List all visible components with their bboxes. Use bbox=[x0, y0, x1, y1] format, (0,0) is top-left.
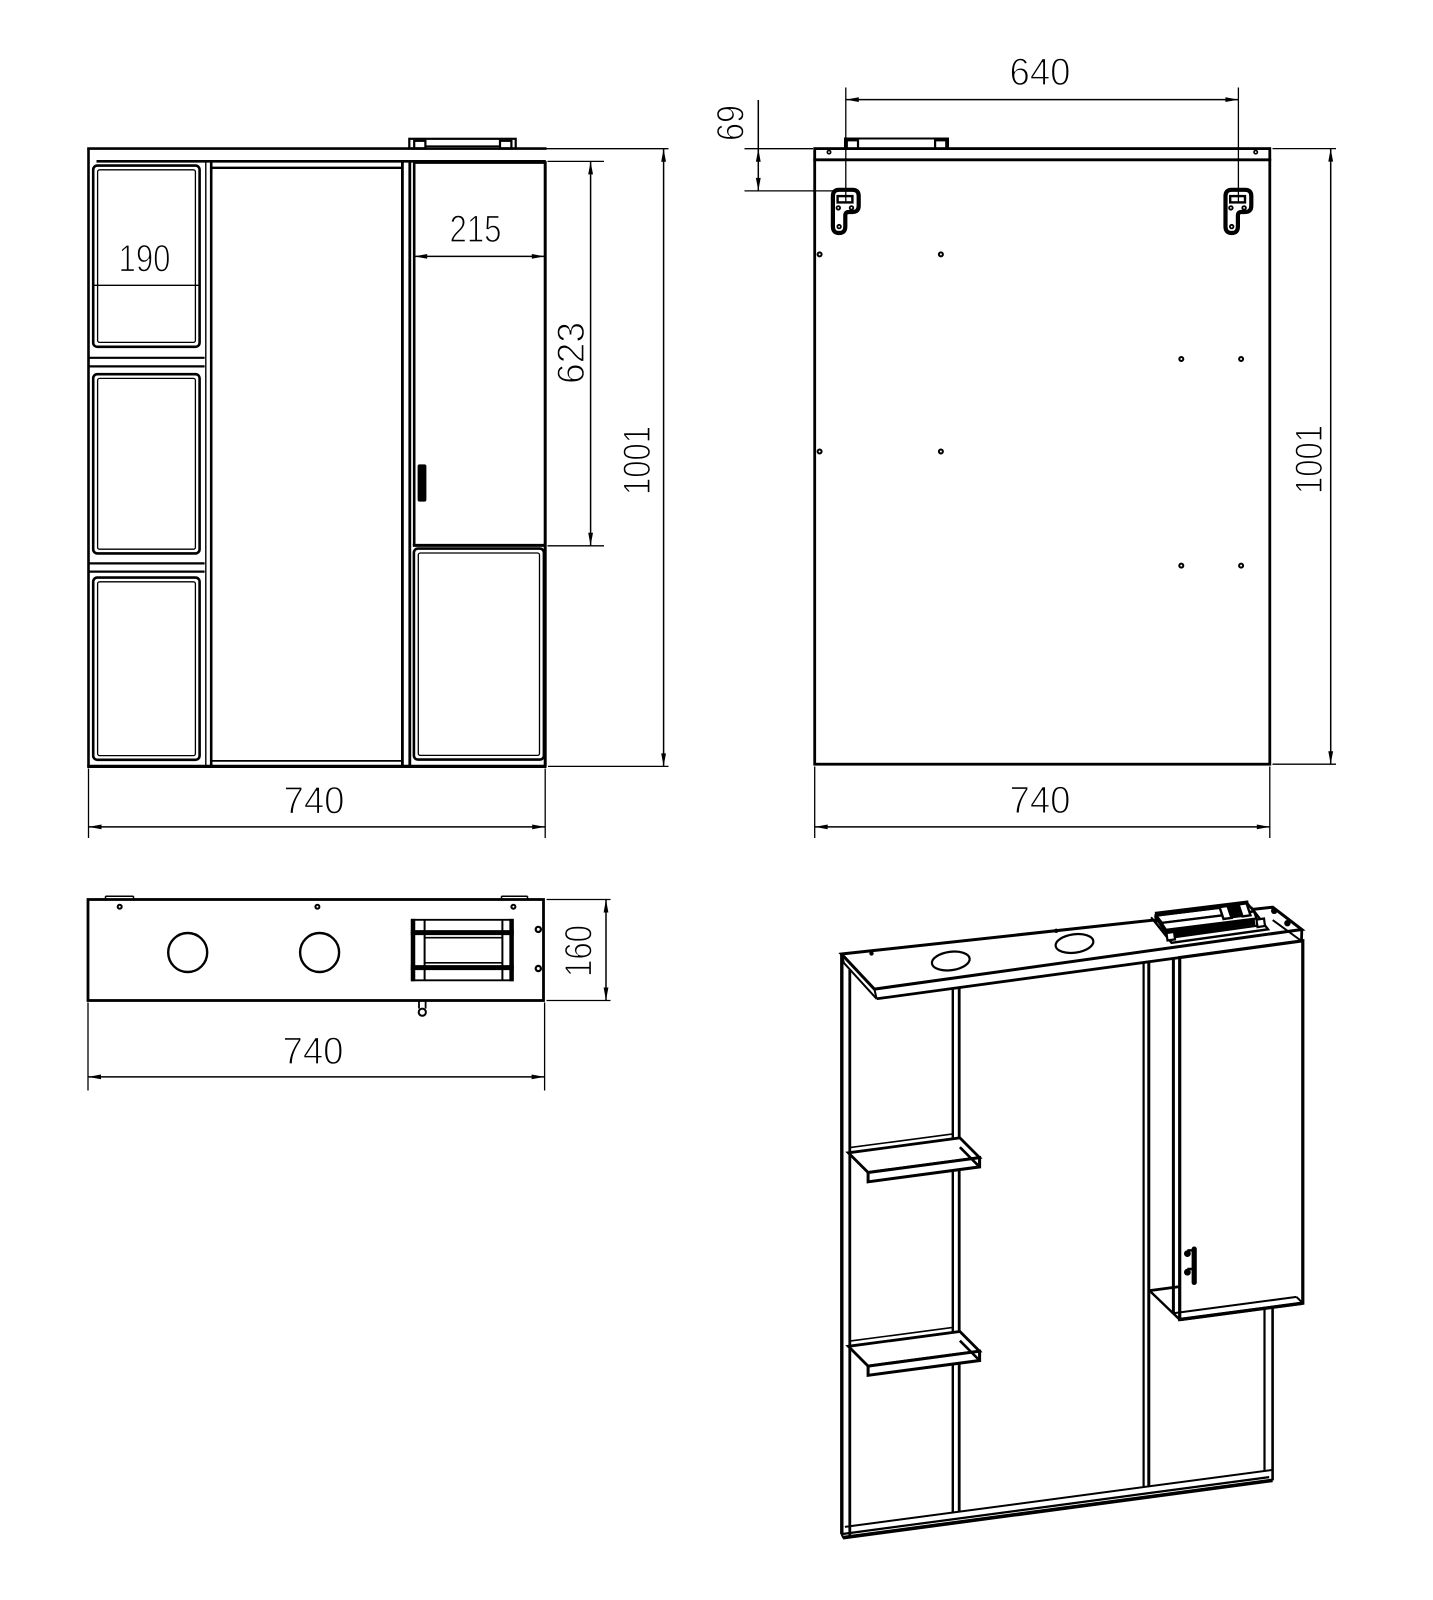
svg-text:640: 640 bbox=[1009, 51, 1070, 94]
svg-text:623: 623 bbox=[550, 322, 593, 384]
svg-text:190: 190 bbox=[118, 237, 170, 280]
svg-text:160: 160 bbox=[558, 925, 601, 977]
svg-text:740: 740 bbox=[282, 1030, 343, 1073]
svg-text:1001: 1001 bbox=[616, 426, 659, 495]
svg-text:1001: 1001 bbox=[1288, 425, 1331, 494]
svg-text:740: 740 bbox=[283, 779, 344, 822]
svg-text:215: 215 bbox=[449, 208, 501, 251]
svg-text:740: 740 bbox=[1009, 779, 1070, 822]
svg-text:69: 69 bbox=[710, 105, 753, 141]
